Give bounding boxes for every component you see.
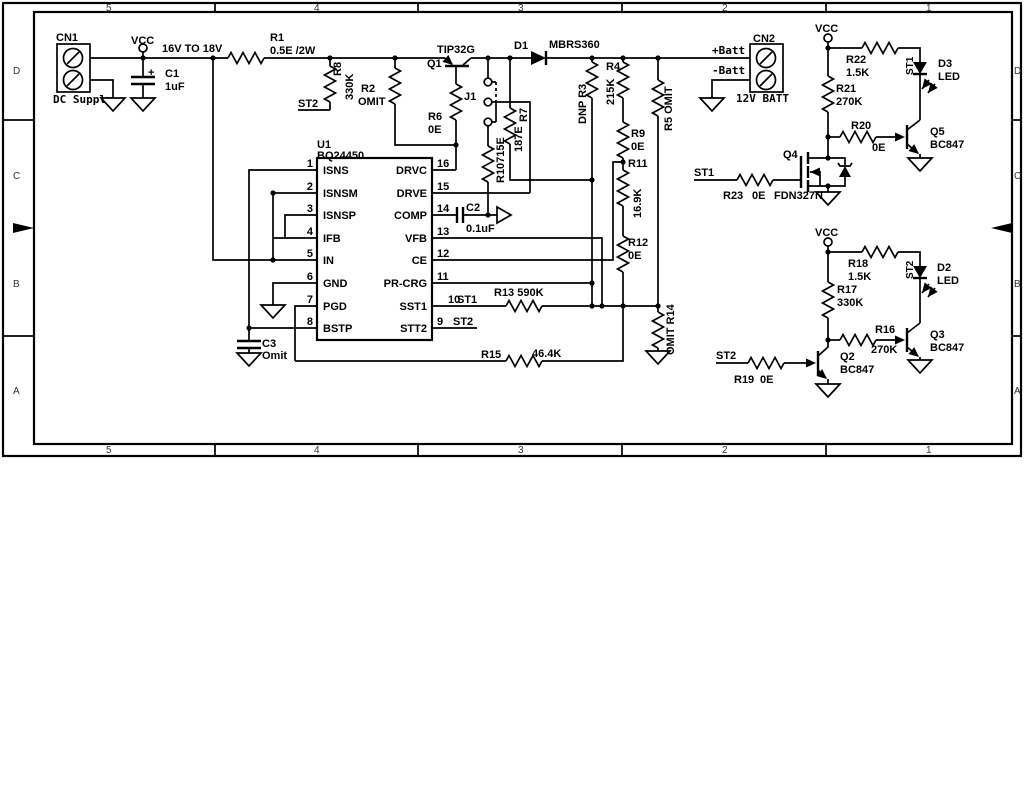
- screw-terminal-icon: [757, 71, 776, 90]
- r17-value: 330K: [837, 297, 863, 309]
- pin-name: SST1: [399, 301, 427, 313]
- r20-value: 0E: [872, 142, 885, 154]
- input-range-label: 16V TO 18V: [162, 43, 223, 55]
- pin-name: ISNS: [323, 165, 349, 177]
- r20-label: R20: [851, 120, 871, 132]
- ground-icon: [261, 305, 285, 318]
- zone-col: 2: [722, 3, 728, 14]
- r1-value: 0.5E /2W: [270, 45, 316, 57]
- q1-label: Q1: [427, 58, 442, 70]
- r16-label: R16: [875, 324, 895, 336]
- ground-icon: [131, 98, 155, 111]
- q1-part-label: TIP32G: [437, 44, 475, 56]
- r8-value: 330K: [344, 74, 356, 100]
- screw-terminal-icon: [64, 71, 83, 90]
- r15-label: R15: [481, 349, 501, 361]
- pin-name: PR-CRG: [384, 278, 427, 290]
- st2-indicator-block: VCC R18 1.5K R17 330K ST2 D2 LED R16 270…: [716, 227, 964, 397]
- r8-resistor: ST2 R8 330K: [298, 58, 356, 110]
- r1-resistor: R1 0.5E /2W: [228, 32, 316, 64]
- r22-label: R22: [846, 54, 866, 66]
- ground-icon: [908, 360, 932, 373]
- u1-pin-numbers-left: 1 2 3 4 5 6 7 8: [307, 158, 314, 328]
- c1-plus: +: [148, 67, 154, 79]
- r5-label: R5 OMIT: [663, 86, 675, 131]
- left-center-arrow-icon: [13, 223, 34, 233]
- pin-name: CE: [412, 255, 427, 267]
- q3-label: Q3: [930, 329, 945, 341]
- r12-value: 0E: [628, 250, 641, 262]
- q2-part-label: BC847: [840, 364, 874, 376]
- pin-number: 15: [437, 181, 449, 193]
- d2-led: ST2 D2 LED: [905, 260, 959, 323]
- pin-number: 11: [437, 271, 449, 283]
- d2-label: D2: [937, 262, 951, 274]
- zone-row: C: [1014, 171, 1021, 182]
- q2-label: Q2: [840, 351, 855, 363]
- pin-name: ISNSP: [323, 210, 356, 222]
- vcc-label: VCC: [131, 35, 154, 47]
- zone-col: 3: [518, 445, 524, 456]
- u1-pin-names-right: DRVC DRVE COMP VFB CE PR-CRG SST1 STT2: [384, 165, 427, 335]
- ground-icon: [908, 158, 932, 171]
- r12-label: R12: [628, 237, 648, 249]
- r1-label: R1: [270, 32, 284, 44]
- batt-plus-label: +Batt: [712, 44, 745, 57]
- c3-label: C3: [262, 338, 276, 350]
- st1-rot-label: ST1: [905, 56, 916, 75]
- r14-label: OMIT R14: [665, 303, 677, 355]
- pin-name: ISNSM: [323, 188, 358, 200]
- c2-capacitor: C2 0.1uF: [457, 202, 511, 235]
- c2-label: C2: [466, 202, 480, 214]
- batt-desc: 12V BATT: [736, 92, 789, 105]
- pin-name: COMP: [394, 210, 427, 222]
- cn2-connector: CN2 +Batt -Batt 12V BATT: [700, 33, 789, 111]
- jumper-pin-icon: [484, 98, 492, 106]
- st1-net-label: ST1: [457, 294, 477, 306]
- r6-resistor: R6 0E: [428, 66, 462, 170]
- pin-number: 9: [437, 316, 443, 328]
- r21-value: 270K: [836, 96, 862, 108]
- c1-label: C1: [165, 68, 179, 80]
- vcc-label: VCC: [815, 227, 838, 239]
- pin-number: 8: [307, 316, 313, 328]
- screw-terminal-icon: [757, 49, 776, 68]
- zone-col: 1: [926, 3, 932, 14]
- q1-transistor: TIP32G Q1: [427, 44, 475, 70]
- pin-number: 5: [307, 248, 313, 260]
- c2-value: 0.1uF: [466, 223, 495, 235]
- r18-label: R18: [848, 258, 868, 270]
- zone-col: 1: [926, 445, 932, 456]
- c3-capacitor: C3 Omit: [237, 338, 287, 366]
- zone-col: 3: [518, 3, 524, 14]
- vcc-icon: [824, 34, 832, 42]
- zone-row: D: [1014, 66, 1021, 77]
- q2-transistor: ST2 R19 0E Q2 BC847: [716, 340, 874, 397]
- pin-name: STT2: [400, 323, 427, 335]
- pin-number: 2: [307, 181, 313, 193]
- r15-value: 46.4K: [532, 348, 561, 360]
- ground-icon: [237, 353, 261, 366]
- st2-net-label: ST2: [716, 350, 736, 362]
- q3-part-label: BC847: [930, 342, 964, 354]
- r3-resistor: DNP R3: [577, 58, 598, 306]
- zone-col: 4: [314, 3, 320, 14]
- vcc-icon: [824, 238, 832, 246]
- r23-label: R23: [723, 190, 743, 202]
- diode-icon: [531, 51, 546, 65]
- r7-value: 187E: [513, 126, 525, 152]
- r10-resistor: R10715E: [483, 137, 508, 215]
- u1-pin-names-left: ISNS ISNSM ISNSP IFB IN GND PGD BSTP: [323, 165, 358, 335]
- r2-value: OMIT: [358, 96, 386, 108]
- r13-label: R13 590K: [494, 287, 544, 299]
- zone-col: 5: [106, 445, 112, 456]
- pin-name: BSTP: [323, 323, 352, 335]
- zone-row: D: [13, 66, 20, 77]
- q4-part-label: FDN327N: [774, 190, 823, 202]
- zone-row: B: [13, 279, 20, 290]
- st2-net-label: ST2: [453, 316, 473, 328]
- zone-row: B: [1014, 279, 1021, 290]
- zone-col: 2: [722, 445, 728, 456]
- d3-led: ST1 D3 LED: [905, 56, 960, 120]
- base-arrow-icon: [895, 133, 905, 142]
- r6-value: 0E: [428, 124, 441, 136]
- r4-label: R4: [606, 61, 621, 73]
- schematic-page: 5 4 3 2 1 5 4 3 2 1 D C B A D C B A CN1 …: [0, 0, 1024, 791]
- zone-row: C: [13, 171, 20, 182]
- ground-icon: [700, 98, 724, 111]
- r5-r14-column: R5 OMIT OMIT R14: [646, 58, 677, 364]
- cn2-label: CN2: [753, 33, 775, 45]
- zone-col: 5: [106, 3, 112, 14]
- net-flag-icon: [497, 207, 511, 223]
- r9-label: R9: [631, 128, 645, 140]
- input-rail: VCC 16V TO 18V + C1 1uF R1 0.5E /2W: [90, 32, 750, 111]
- r7-label: R7: [518, 108, 530, 122]
- r19-value: 0E: [760, 374, 773, 386]
- pin-name: PGD: [323, 301, 347, 313]
- pin-name: GND: [323, 278, 348, 290]
- q5-label: Q5: [930, 126, 945, 138]
- jumper-pin-icon: [484, 118, 492, 126]
- battery-divider-column: R4 215K R9 0E R11 16.9K R12 0E: [605, 58, 648, 306]
- r19-label: R19: [734, 374, 754, 386]
- c1-value: 1uF: [165, 81, 185, 93]
- pin-number: 3: [307, 203, 313, 215]
- pin-number: 14: [437, 203, 450, 215]
- batt-minus-label: -Batt: [712, 64, 745, 77]
- u1-part-label: BQ24450: [317, 150, 364, 162]
- d1-part-label: MBRS360: [549, 39, 600, 51]
- d1-label: D1: [514, 40, 528, 52]
- pin-number: 13: [437, 226, 449, 238]
- r18-value: 1.5K: [848, 271, 871, 283]
- d1-diode: D1 MBRS360: [514, 39, 600, 65]
- vcc-label: VCC: [815, 23, 838, 35]
- pin-number: 12: [437, 248, 449, 260]
- r10-label: R10715E: [495, 137, 507, 183]
- pin-number: 7: [307, 294, 313, 306]
- q5-transistor: Q5 BC847: [907, 120, 964, 171]
- q5-part-label: BC847: [930, 139, 964, 151]
- d3-desc: LED: [938, 71, 960, 83]
- pin-number: 4: [307, 226, 314, 238]
- cn1-label: CN1: [56, 32, 78, 44]
- r4-value: 215K: [605, 79, 617, 105]
- pin-number: 6: [307, 271, 313, 283]
- zone-col: 4: [314, 445, 320, 456]
- r6-label: R6: [428, 111, 442, 123]
- cn1-connector: CN1 DC Supply: [53, 32, 125, 111]
- pin-number: 1: [307, 158, 313, 170]
- pin-name: DRVE: [397, 188, 427, 200]
- r23-value: 0E: [752, 190, 765, 202]
- zone-row: A: [1014, 386, 1021, 397]
- q4-label: Q4: [783, 149, 799, 161]
- r13-resistor: R13 590K: [494, 287, 544, 312]
- r16-value: 270K: [871, 344, 897, 356]
- st2-rot-label: ST2: [905, 260, 916, 279]
- pin-number: 16: [437, 158, 449, 170]
- r8-label: R8: [332, 62, 344, 76]
- c1-capacitor: + C1 1uF: [131, 58, 185, 111]
- schematic-svg: 5 4 3 2 1 5 4 3 2 1 D C B A D C B A CN1 …: [0, 0, 1024, 791]
- pin-name: VFB: [405, 233, 427, 245]
- right-center-arrow-icon: [991, 223, 1012, 233]
- r9-value: 0E: [631, 141, 644, 153]
- r21-label: R21: [836, 83, 856, 95]
- c3-value: Omit: [262, 350, 287, 362]
- j1-label: J1: [464, 91, 476, 103]
- r11-label: R11: [628, 158, 648, 170]
- d2-desc: LED: [937, 275, 959, 287]
- screw-terminal-icon: [64, 49, 83, 68]
- base-arrow-icon: [806, 359, 816, 368]
- q4-mosfet: ST1 R23 0E Q4 FDN327N: [694, 137, 852, 205]
- q3-transistor: Q3 BC847: [907, 323, 964, 373]
- d3-label: D3: [938, 58, 952, 70]
- body-diode-icon: [839, 166, 851, 177]
- pin-name: IFB: [323, 233, 341, 245]
- zone-row: A: [13, 386, 20, 397]
- ground-icon: [816, 384, 840, 397]
- r22-value: 1.5K: [846, 67, 869, 79]
- r17-label: R17: [837, 284, 857, 296]
- r2-label: R2: [361, 83, 375, 95]
- st1-net-label: ST1: [694, 167, 714, 179]
- st1-indicator-block: VCC R22 1.5K R21 270K ST1 D3 LED R20 0E …: [815, 23, 964, 171]
- st2-net-label: ST2: [298, 98, 318, 110]
- jumper-pin-icon: [484, 78, 492, 86]
- pin-name: IN: [323, 255, 334, 267]
- r3-label: DNP R3: [577, 84, 589, 124]
- pin-name: DRVC: [396, 165, 427, 177]
- r11-value: 16.9K: [632, 189, 644, 218]
